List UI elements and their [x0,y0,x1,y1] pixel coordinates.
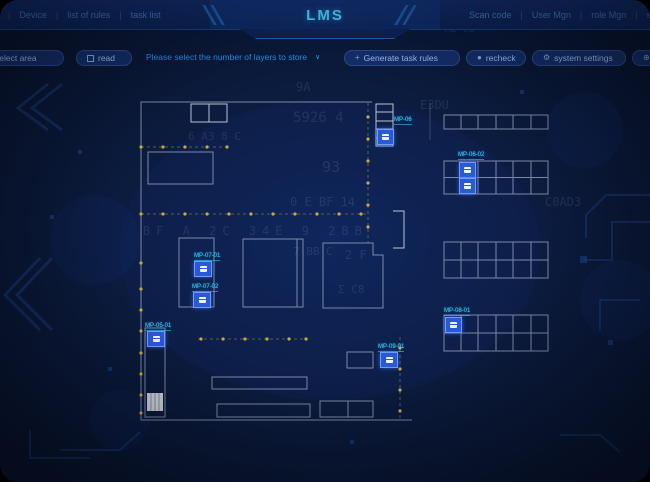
layer-select-dropdown[interactable]: Please select the number of layers to st… [146,52,320,62]
circle-plus-icon: ⊕ [643,54,650,62]
rack-c [444,242,548,278]
generate-task-rules-button[interactable]: + Generate task rules [344,50,460,66]
select-area-button[interactable]: select area [0,50,64,66]
menu-item-user-mgn[interactable]: User Mgn [523,10,580,20]
dot-icon: ● [477,54,482,62]
menu-item-scan-code[interactable]: Scan code [460,10,521,20]
main-boundary [141,102,412,420]
menu-item-list-of-rules[interactable]: list of rules [58,10,119,20]
system-settings-label: system settings [554,53,613,63]
marker-label: MP-07-01 [194,253,220,261]
marker-label: MP-09-01 [378,344,404,352]
rack-a [444,115,548,129]
machine-icon [450,322,457,328]
read-label: read [98,53,115,63]
title-tab-shape [239,29,411,39]
recheck-button[interactable]: ● recheck [466,50,526,66]
chevron-down-icon: ∨ [315,53,320,61]
app-title: LMS [306,7,344,24]
machine-icon [153,336,160,342]
menu-item-settings[interactable]: set [638,10,650,20]
menu-item-role-mgn[interactable]: role Mgn [582,10,635,20]
system-settings-button[interactable]: ⚙ system settings [532,50,626,66]
location-marker[interactable] [147,331,165,347]
door-bracket [393,211,404,248]
machine-icon [464,167,471,173]
location-marker[interactable] [194,261,212,277]
cad-floorplan-canvas[interactable]: MP-06 MP-06-02 MP-07-01 MP-07-02 MP-05-0… [0,0,650,482]
hatched-cell [147,393,163,411]
location-marker[interactable] [193,292,211,308]
notched-room [323,243,383,308]
select-area-label: select area [0,53,37,63]
location-marker[interactable] [380,352,398,368]
marker-label: MP-06 [394,117,412,125]
marker-label: MP-06-02 [458,152,484,160]
main-menu-left: | Device | list of rules | task list [8,0,170,30]
marker-label: MP-07-02 [192,284,218,292]
read-icon [87,55,94,62]
cad-drawing-settings-button[interactable]: ⊕ CAD drawing set [632,50,650,66]
menu-item-device[interactable]: Device [10,10,56,20]
main-menu-right: Scan code | User Mgn | role Mgn | set [460,0,650,30]
gear-icon: ⚙ [543,54,550,62]
guide-lines [141,103,400,419]
recheck-label: recheck [486,53,516,63]
location-marker[interactable] [377,129,394,145]
plus-icon: + [355,54,360,62]
marker-label: MP-08-01 [444,308,470,316]
machine-icon [382,134,389,140]
marker-label: MP-05-01 [145,323,171,331]
machine-icon [464,183,471,189]
menu-item-task-list[interactable]: task list [122,10,170,20]
top-nav-bar: | Device | list of rules | task list LMS… [0,0,650,30]
machine-icon [199,297,206,303]
machine-icon [200,266,207,272]
location-marker[interactable] [459,178,476,194]
read-button[interactable]: read [76,50,132,66]
floorplan-drawing [0,0,650,482]
generate-task-rules-label: Generate task rules [364,53,438,63]
layer-hint-text: Please select the number of layers to st… [146,52,307,62]
location-marker[interactable] [459,162,476,178]
toolbar: select area read Please select the numbe… [0,44,650,70]
location-marker[interactable] [445,317,462,333]
app-window: 9A A 7 5926 4 E3DU 6 A3 8 C 93 0 E BF 14… [0,0,650,482]
machine-icon [386,357,393,363]
